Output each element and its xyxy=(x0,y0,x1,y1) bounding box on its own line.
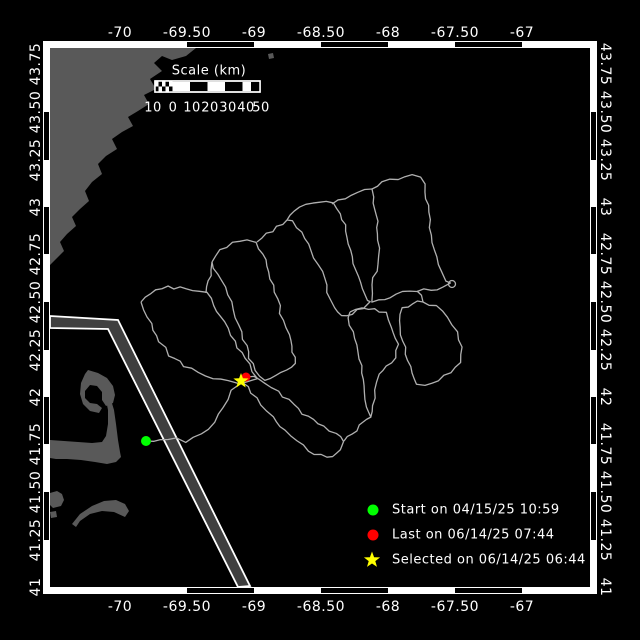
scale-bar-title: Scale (km) xyxy=(172,64,246,79)
glider-track-leg-4 xyxy=(257,220,287,242)
scale-label-0: 0 xyxy=(169,101,178,116)
axis-label-top: -68.50 xyxy=(297,25,345,41)
axis-label-top: -69 xyxy=(242,25,266,41)
glider-track-loop-5 xyxy=(400,301,462,385)
frame-tick-segment xyxy=(591,112,596,160)
legend-start-dot-icon xyxy=(368,505,379,516)
axis-label-left: 41.25 xyxy=(28,519,44,562)
axis-label-bottom: -69.50 xyxy=(163,599,211,615)
glider-track-leg-6 xyxy=(344,417,371,441)
frame-tick-segment xyxy=(591,397,596,444)
scale-label-10: 10 xyxy=(183,101,201,116)
glider-track-leg-3 xyxy=(206,262,212,293)
axis-label-left: 43.50 xyxy=(28,91,44,134)
frame-tick-segment xyxy=(187,42,254,47)
scale-label-30: 30 xyxy=(219,101,237,116)
frame-tick-segment xyxy=(455,588,522,593)
axis-label-right: 43.25 xyxy=(597,139,613,182)
axis-label-right: 42.50 xyxy=(597,281,613,324)
legend-selected-star-icon xyxy=(364,552,380,567)
axis-label-right: 41.75 xyxy=(597,423,613,466)
axis-label-top: -70 xyxy=(108,25,132,41)
frame-tick-segment xyxy=(44,397,49,444)
axis-label-right: 41 xyxy=(597,578,613,597)
glider-track-leg-5 xyxy=(332,189,372,204)
glider-track-leg-2 xyxy=(243,376,344,457)
axis-label-left: 43.75 xyxy=(28,43,44,86)
axis-label-right: 42.75 xyxy=(597,233,613,276)
axis-label-bottom: -69 xyxy=(242,599,266,615)
axis-label-left: 43 xyxy=(28,198,44,217)
axis-label-left: 41.50 xyxy=(28,471,44,514)
axis-label-left: 41 xyxy=(28,578,44,597)
axis-label-bottom: -67.50 xyxy=(431,599,479,615)
glider-track-loop-2 xyxy=(212,240,295,380)
frame-tick-segment xyxy=(44,112,49,160)
glider-track-loop-3 xyxy=(287,201,370,315)
frame-tick-segment xyxy=(591,207,596,254)
glider-track-loop-6 xyxy=(348,308,398,417)
axis-label-right: 42 xyxy=(597,388,613,407)
axis-label-top: -67 xyxy=(510,25,534,41)
legend-last-dot-icon xyxy=(368,530,379,541)
axis-label-right: 43.75 xyxy=(597,43,613,86)
axis-label-left: 42.50 xyxy=(28,281,44,324)
frame-tick-segment xyxy=(44,302,49,350)
start-marker[interactable] xyxy=(141,436,151,446)
axis-label-left: 43.25 xyxy=(28,139,44,182)
axis-label-top: -67.50 xyxy=(431,25,479,41)
axis-label-right: 41.25 xyxy=(597,519,613,562)
axis-label-bottom: -67 xyxy=(510,599,534,615)
land-nantucket xyxy=(72,500,129,527)
axis-label-right: 41.50 xyxy=(597,471,613,514)
frame-tick-segment xyxy=(321,42,388,47)
frame-tick-segment xyxy=(44,207,49,254)
frame-tick-segment xyxy=(321,588,388,593)
frame-tick-segment xyxy=(591,302,596,350)
axis-label-right: 43.50 xyxy=(597,91,613,134)
axis-label-left: 42.25 xyxy=(28,329,44,372)
axis-label-top: -68 xyxy=(376,25,400,41)
axis-label-top: -69.50 xyxy=(163,25,211,41)
frame-tick-segment xyxy=(591,492,596,540)
land-islet xyxy=(268,53,274,59)
map-plot-window: Scale (km) 10 0 10 20 30 40 50 Start on … xyxy=(0,0,640,640)
axis-label-right: 42.25 xyxy=(597,329,613,372)
glider-track-leg-7 xyxy=(417,291,423,302)
glider-track-loop-4 xyxy=(372,175,451,302)
scale-label-10-left: 10 xyxy=(144,101,162,116)
axis-label-left: 42 xyxy=(28,388,44,407)
axis-label-left: 42.75 xyxy=(28,233,44,276)
land-islet xyxy=(50,511,57,518)
glider-track-loop-1 xyxy=(141,286,257,384)
axis-label-bottom: -68.50 xyxy=(297,599,345,615)
land-cape-cod-arm xyxy=(50,400,121,464)
frame-tick-segment xyxy=(44,492,49,540)
axis-label-bottom: -70 xyxy=(108,599,132,615)
scale-label-20: 20 xyxy=(201,101,219,116)
legend-item-start: Start on 04/15/25 10:59 xyxy=(392,503,560,518)
legend-item-selected: Selected on 06/14/25 06:44 xyxy=(392,553,586,568)
frame-tick-segment xyxy=(455,42,522,47)
axis-label-left: 41.75 xyxy=(28,423,44,466)
axis-label-bottom: -68 xyxy=(376,599,400,615)
land-marthas-vineyard xyxy=(50,491,64,508)
frame-tick-segment xyxy=(187,588,254,593)
legend-item-last: Last on 06/14/25 07:44 xyxy=(392,528,555,543)
axis-label-right: 43 xyxy=(597,198,613,217)
scale-label-50: 50 xyxy=(252,101,270,116)
map-canvas[interactable] xyxy=(0,0,640,640)
scale-bar xyxy=(155,81,260,92)
